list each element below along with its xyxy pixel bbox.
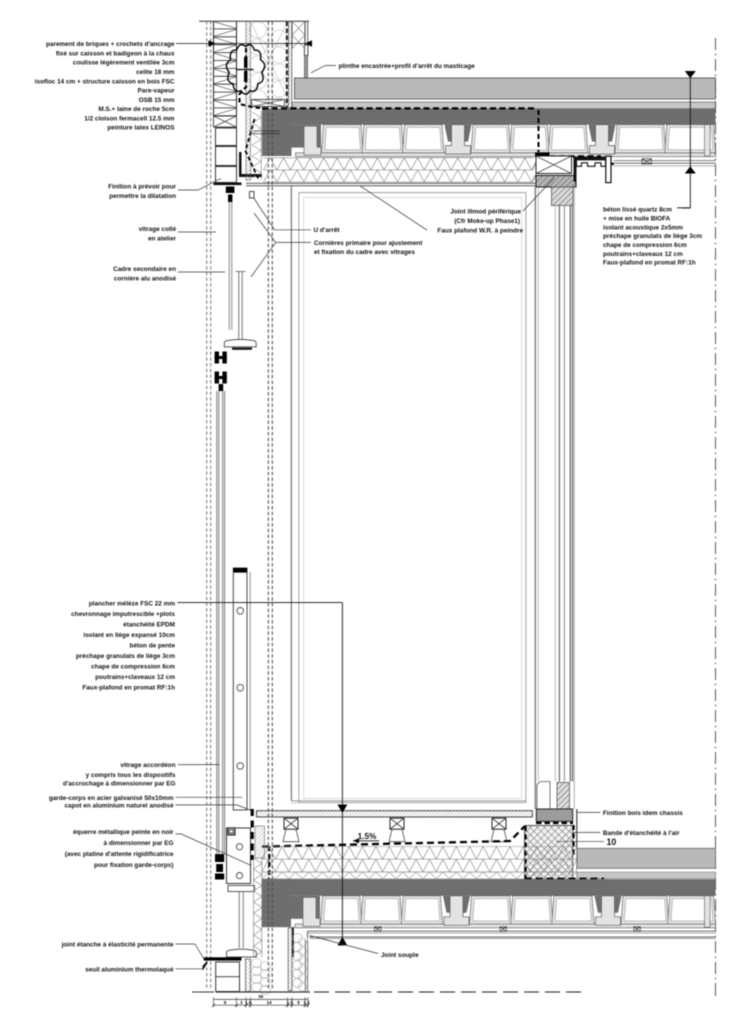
svg-text:seuil aluminium thermolaqué: seuil aluminium thermolaqué [85, 966, 174, 973]
svg-text:parement de briques + crochets: parement de briques + crochets d'ancrage [46, 41, 175, 48]
svg-text:joint étanche à élasticité per: joint étanche à élasticité permanente [61, 942, 174, 949]
svg-text:1.5: 1.5 [287, 1000, 294, 1005]
svg-text:Joint souple: Joint souple [381, 952, 419, 959]
svg-text:Faux-plafond en promat RF:1h: Faux-plafond en promat RF:1h [82, 684, 175, 691]
svg-text:1.5%: 1.5% [358, 832, 377, 841]
svg-text:Finition bois idem chassis: Finition bois idem chassis [603, 810, 683, 817]
svg-text:Pare-vapeur: Pare-vapeur [138, 88, 175, 95]
svg-text:Cadre secondaire en: Cadre secondaire en [113, 266, 176, 273]
svg-text:cornière alu anodisé: cornière alu anodisé [114, 275, 177, 282]
svg-text:+ mise en huile BIOFA: + mise en huile BIOFA [603, 215, 671, 222]
svg-text:OSB 15 mm: OSB 15 mm [139, 97, 175, 104]
svg-text:coulisse légèrement ventilée 3: coulisse légèrement ventilée 3cm [73, 60, 175, 67]
svg-text:béton de pente: béton de pente [130, 642, 176, 649]
svg-text:chape de compression 6cm: chape de compression 6cm [91, 663, 175, 670]
svg-text:1.2: 1.2 [303, 1000, 310, 1005]
svg-text:1.8: 1.8 [245, 1000, 252, 1005]
svg-text:(avec platine d'attente rigidi: (avec platine d'attente rigidificatrice [65, 851, 174, 858]
svg-text:en atelier: en atelier [148, 235, 177, 242]
svg-text:béton lissé quartz 8cm: béton lissé quartz 8cm [603, 207, 672, 214]
svg-text:préchape granulats de liège 3c: préchape granulats de liège 3cm [76, 653, 175, 660]
svg-text:Joint illmod périférique: Joint illmod périférique [450, 208, 521, 215]
svg-text:vitrage accordéon: vitrage accordéon [120, 762, 175, 769]
svg-text:d'accrochage à dimensionner pa: d'accrochage à dimensionner par EG [63, 781, 176, 788]
svg-text:3: 3 [240, 1000, 243, 1005]
svg-text:équerre métallique peinte en n: équerre métallique peinte en noir [73, 829, 174, 836]
svg-text:5: 5 [297, 1000, 300, 1005]
svg-text:vitrage collé: vitrage collé [139, 226, 177, 233]
svg-text:1/2 cloison fermacell 12.5 mm: 1/2 cloison fermacell 12.5 mm [84, 115, 175, 122]
svg-text:peinture latex LEINOS: peinture latex LEINOS [107, 125, 175, 132]
svg-text:garde-corps en acier galvanisé: garde-corps en acier galvanisé 50x10mm [49, 795, 174, 802]
svg-text:Cornières primaire pour ajuste: Cornières primaire pour ajustement [314, 240, 423, 247]
svg-text:M.S.+ laine de roche 5cm: M.S.+ laine de roche 5cm [98, 106, 175, 113]
svg-text:étanchéité EPDM: étanchéité EPDM [123, 621, 175, 628]
svg-text:isolant acoustique 2x5mm: isolant acoustique 2x5mm [603, 224, 683, 231]
svg-text:isofloc 14 cm + structure cais: isofloc 14 cm + structure caisson en boi… [35, 78, 175, 85]
svg-text:U d'arrêt: U d'arrêt [314, 227, 341, 234]
svg-text:fixé sur caisson et badigeon à: fixé sur caisson et badigeon à la chaux [56, 50, 175, 57]
svg-text:14: 14 [266, 1000, 272, 1005]
svg-text:poutrains+claveaux 12 cm: poutrains+claveaux 12 cm [95, 674, 175, 681]
svg-text:préchape granulats de liège 3c: préchape granulats de liège 3cm [603, 233, 702, 240]
svg-text:plancher mélèze FSC 22 mm: plancher mélèze FSC 22 mm [89, 600, 176, 607]
svg-text:pour fixation garde-corps): pour fixation garde-corps) [94, 862, 174, 869]
svg-text:10: 10 [607, 837, 617, 847]
svg-text:Finition à prévoir pour: Finition à prévoir pour [108, 184, 176, 191]
svg-text:poutrains+claveaux 12 cm: poutrains+claveaux 12 cm [603, 251, 683, 258]
svg-text:plinthe encastrée+profil d'arr: plinthe encastrée+profil d'arrêt du mast… [339, 63, 476, 70]
svg-text:(Cfr Moke-up Phase1): (Cfr Moke-up Phase1) [454, 218, 520, 225]
svg-text:chape de compression 6cm: chape de compression 6cm [603, 242, 687, 249]
svg-text:36: 36 [258, 994, 264, 999]
svg-text:Faux-plafond en promat RF:1h: Faux-plafond en promat RF:1h [603, 260, 696, 267]
svg-text:9: 9 [224, 1000, 227, 1005]
svg-text:Faux plafond W.R. à peindre: Faux plafond W.R. à peindre [437, 228, 523, 235]
svg-text:celite 18 mm: celite 18 mm [136, 69, 175, 76]
svg-text:chevronnage imputrescible +plo: chevronnage imputrescible +plots [71, 611, 175, 618]
svg-text:capot en aluminium naturel ano: capot en aluminium naturel anodisé [64, 802, 173, 809]
svg-text:à dimensionner par EG: à dimensionner par EG [104, 840, 174, 847]
svg-text:y compris tous les dispositifs: y compris tous les dispositifs [86, 772, 176, 779]
svg-text:permettre la dilatation: permettre la dilatation [109, 193, 176, 200]
svg-text:et fixation du cadre avec vitr: et fixation du cadre avec vitrages [314, 249, 415, 256]
svg-text:isolant en liège expansé 10cm: isolant en liège expansé 10cm [83, 632, 175, 639]
